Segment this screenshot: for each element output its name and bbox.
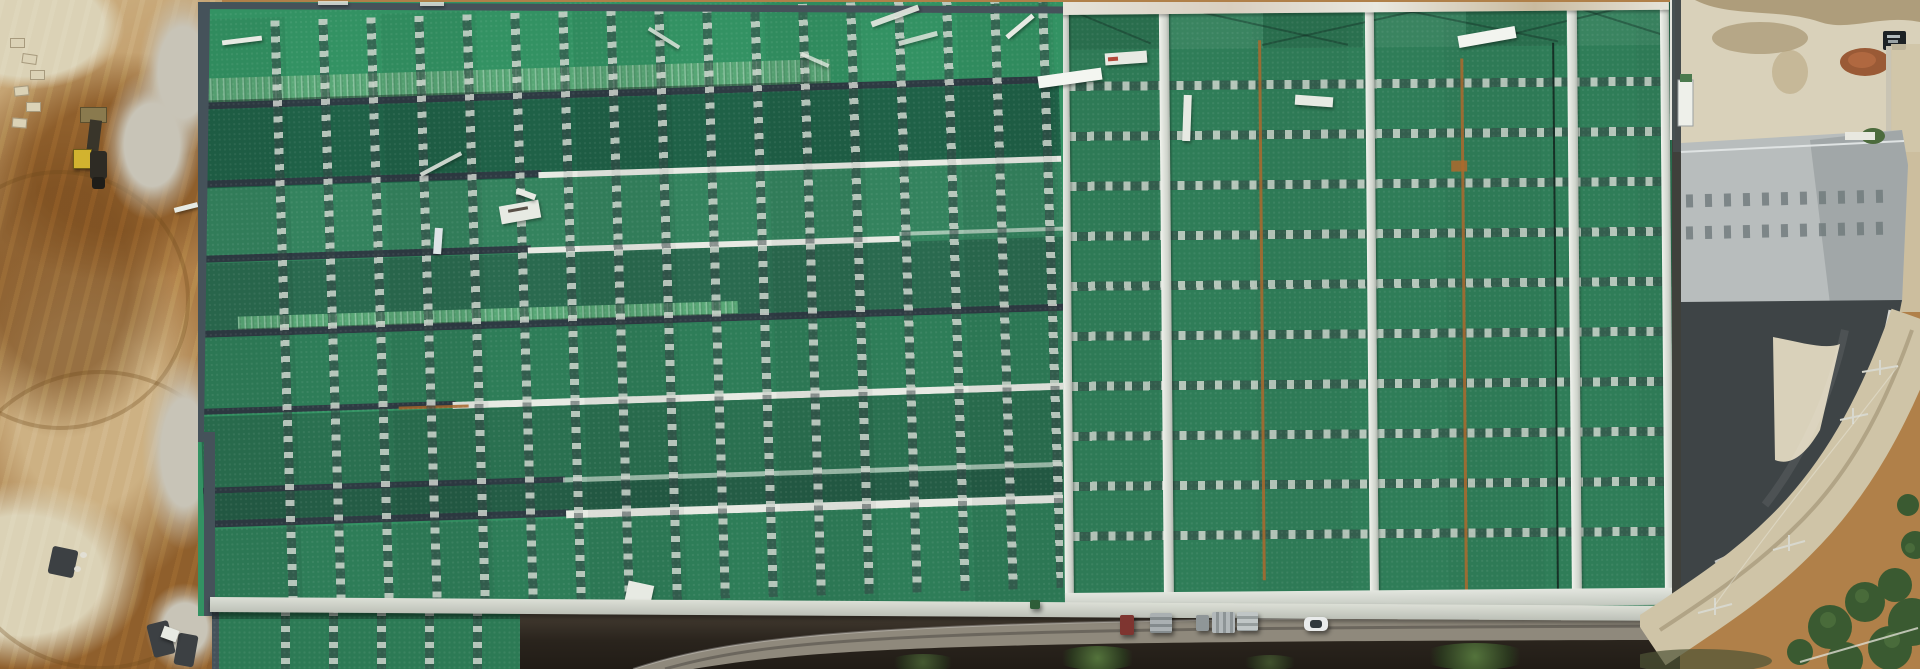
loose-metal-sheet <box>1182 95 1192 141</box>
roof-west-bands <box>198 2 1066 616</box>
vegetation-clump <box>1420 643 1530 669</box>
stone-block <box>21 53 37 65</box>
debris-pile-red <box>1848 52 1876 68</box>
roof-west-edge-lower <box>204 432 215 616</box>
vegetation-clump <box>888 654 958 669</box>
loader-body <box>90 151 107 179</box>
dirt-earthworks-area <box>0 0 222 669</box>
stone-block <box>26 102 41 112</box>
tree-highlight <box>1820 612 1836 628</box>
red-marking <box>1108 57 1118 62</box>
pallet-stack <box>1150 613 1172 633</box>
warehouse-roof-east <box>1063 2 1672 612</box>
east-yard-graphic <box>1640 0 1920 669</box>
roof-east-inner <box>1063 2 1672 612</box>
vegetation-clump <box>1055 646 1140 669</box>
stone-block <box>12 117 28 128</box>
warehouse-roof-west <box>198 2 1066 616</box>
aerial-photo-scene <box>0 0 1920 669</box>
wheel-loader <box>70 105 116 191</box>
parked-white-car <box>1304 617 1328 631</box>
green-cap <box>1680 74 1692 82</box>
loose-metal-sheet <box>420 2 444 6</box>
stone-block <box>10 38 25 48</box>
roof-texture <box>198 2 1066 616</box>
rubble-patch <box>102 70 202 220</box>
grass-strip <box>1640 649 1772 669</box>
stone-debris <box>74 566 81 572</box>
stone-block <box>14 85 30 97</box>
green-bin <box>1030 600 1040 609</box>
white-structure <box>1678 80 1693 126</box>
tree-highlight <box>1855 589 1869 603</box>
roof-texture <box>212 610 520 669</box>
stone-block <box>30 70 45 80</box>
vegetation-clump <box>1240 655 1300 669</box>
truck-cargo-mark <box>1888 40 1898 43</box>
loader-rear <box>92 177 105 189</box>
wet-stain <box>1772 50 1808 94</box>
pallet-stack <box>1237 612 1258 631</box>
tree-highlight <box>1905 543 1915 553</box>
parked-red-box-truck <box>1120 615 1134 635</box>
roof-lower-extension <box>212 610 520 669</box>
car-windows <box>1310 620 1322 628</box>
white-ledge <box>1845 132 1875 140</box>
pallet-stack <box>1196 615 1209 631</box>
tree <box>1897 494 1919 516</box>
stone-debris <box>80 552 87 558</box>
truck-cargo-mark <box>1887 35 1900 38</box>
pallet-stack <box>1212 612 1235 633</box>
rust-patch <box>1451 160 1467 171</box>
wet-stain <box>1712 22 1808 54</box>
loose-metal-sheet <box>318 1 348 5</box>
